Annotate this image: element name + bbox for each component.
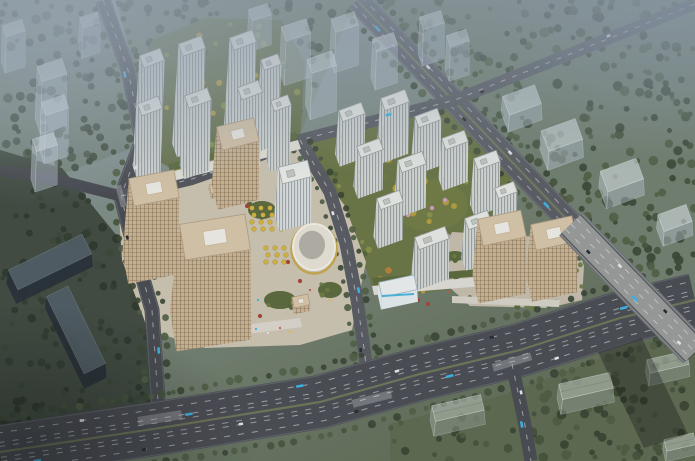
aerial-masterplan-render: [0, 0, 695, 461]
render-canvas: [0, 0, 695, 461]
atmosphere-layer: [0, 0, 695, 461]
